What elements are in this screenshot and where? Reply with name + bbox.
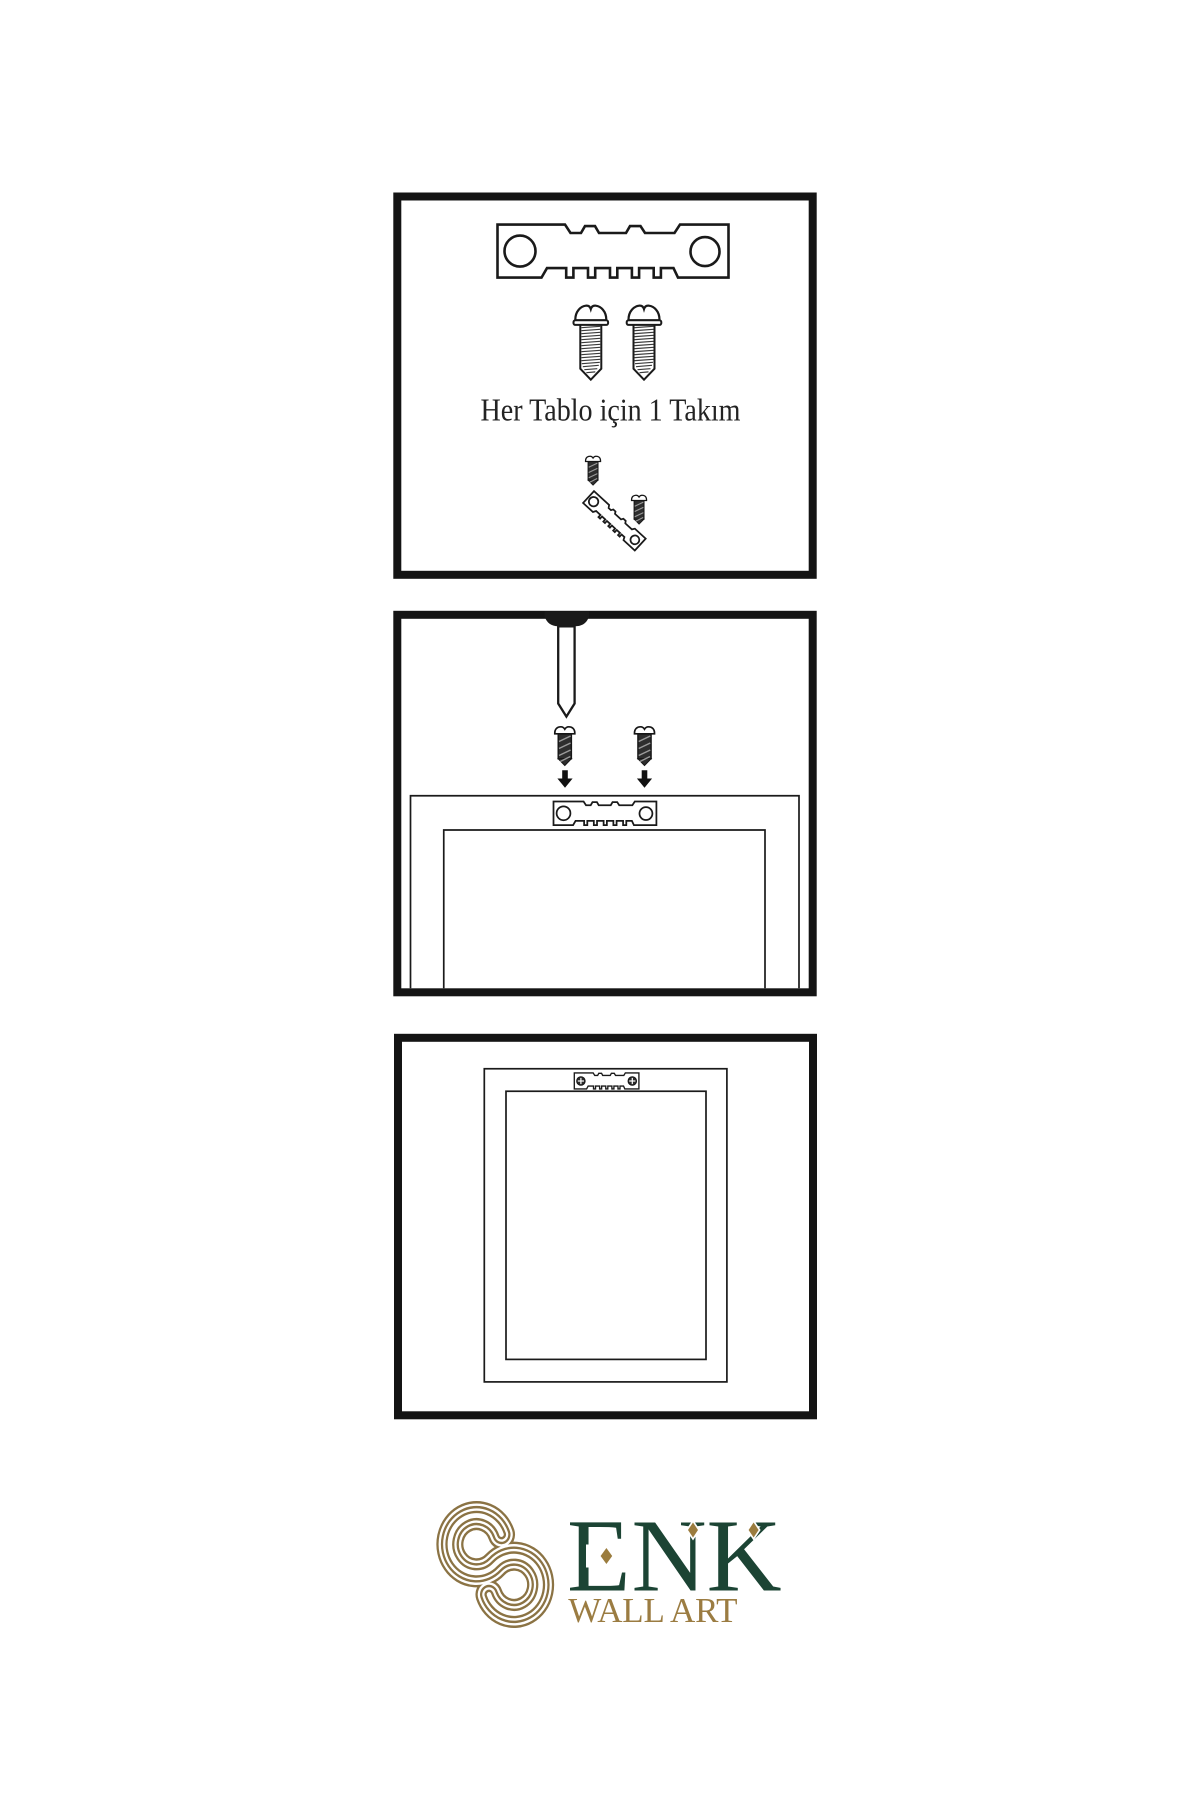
svg-text:WALL ART: WALL ART: [568, 1591, 737, 1630]
svg-text:Her Tablo için 1 Takım: Her Tablo için 1 Takım: [481, 393, 741, 428]
